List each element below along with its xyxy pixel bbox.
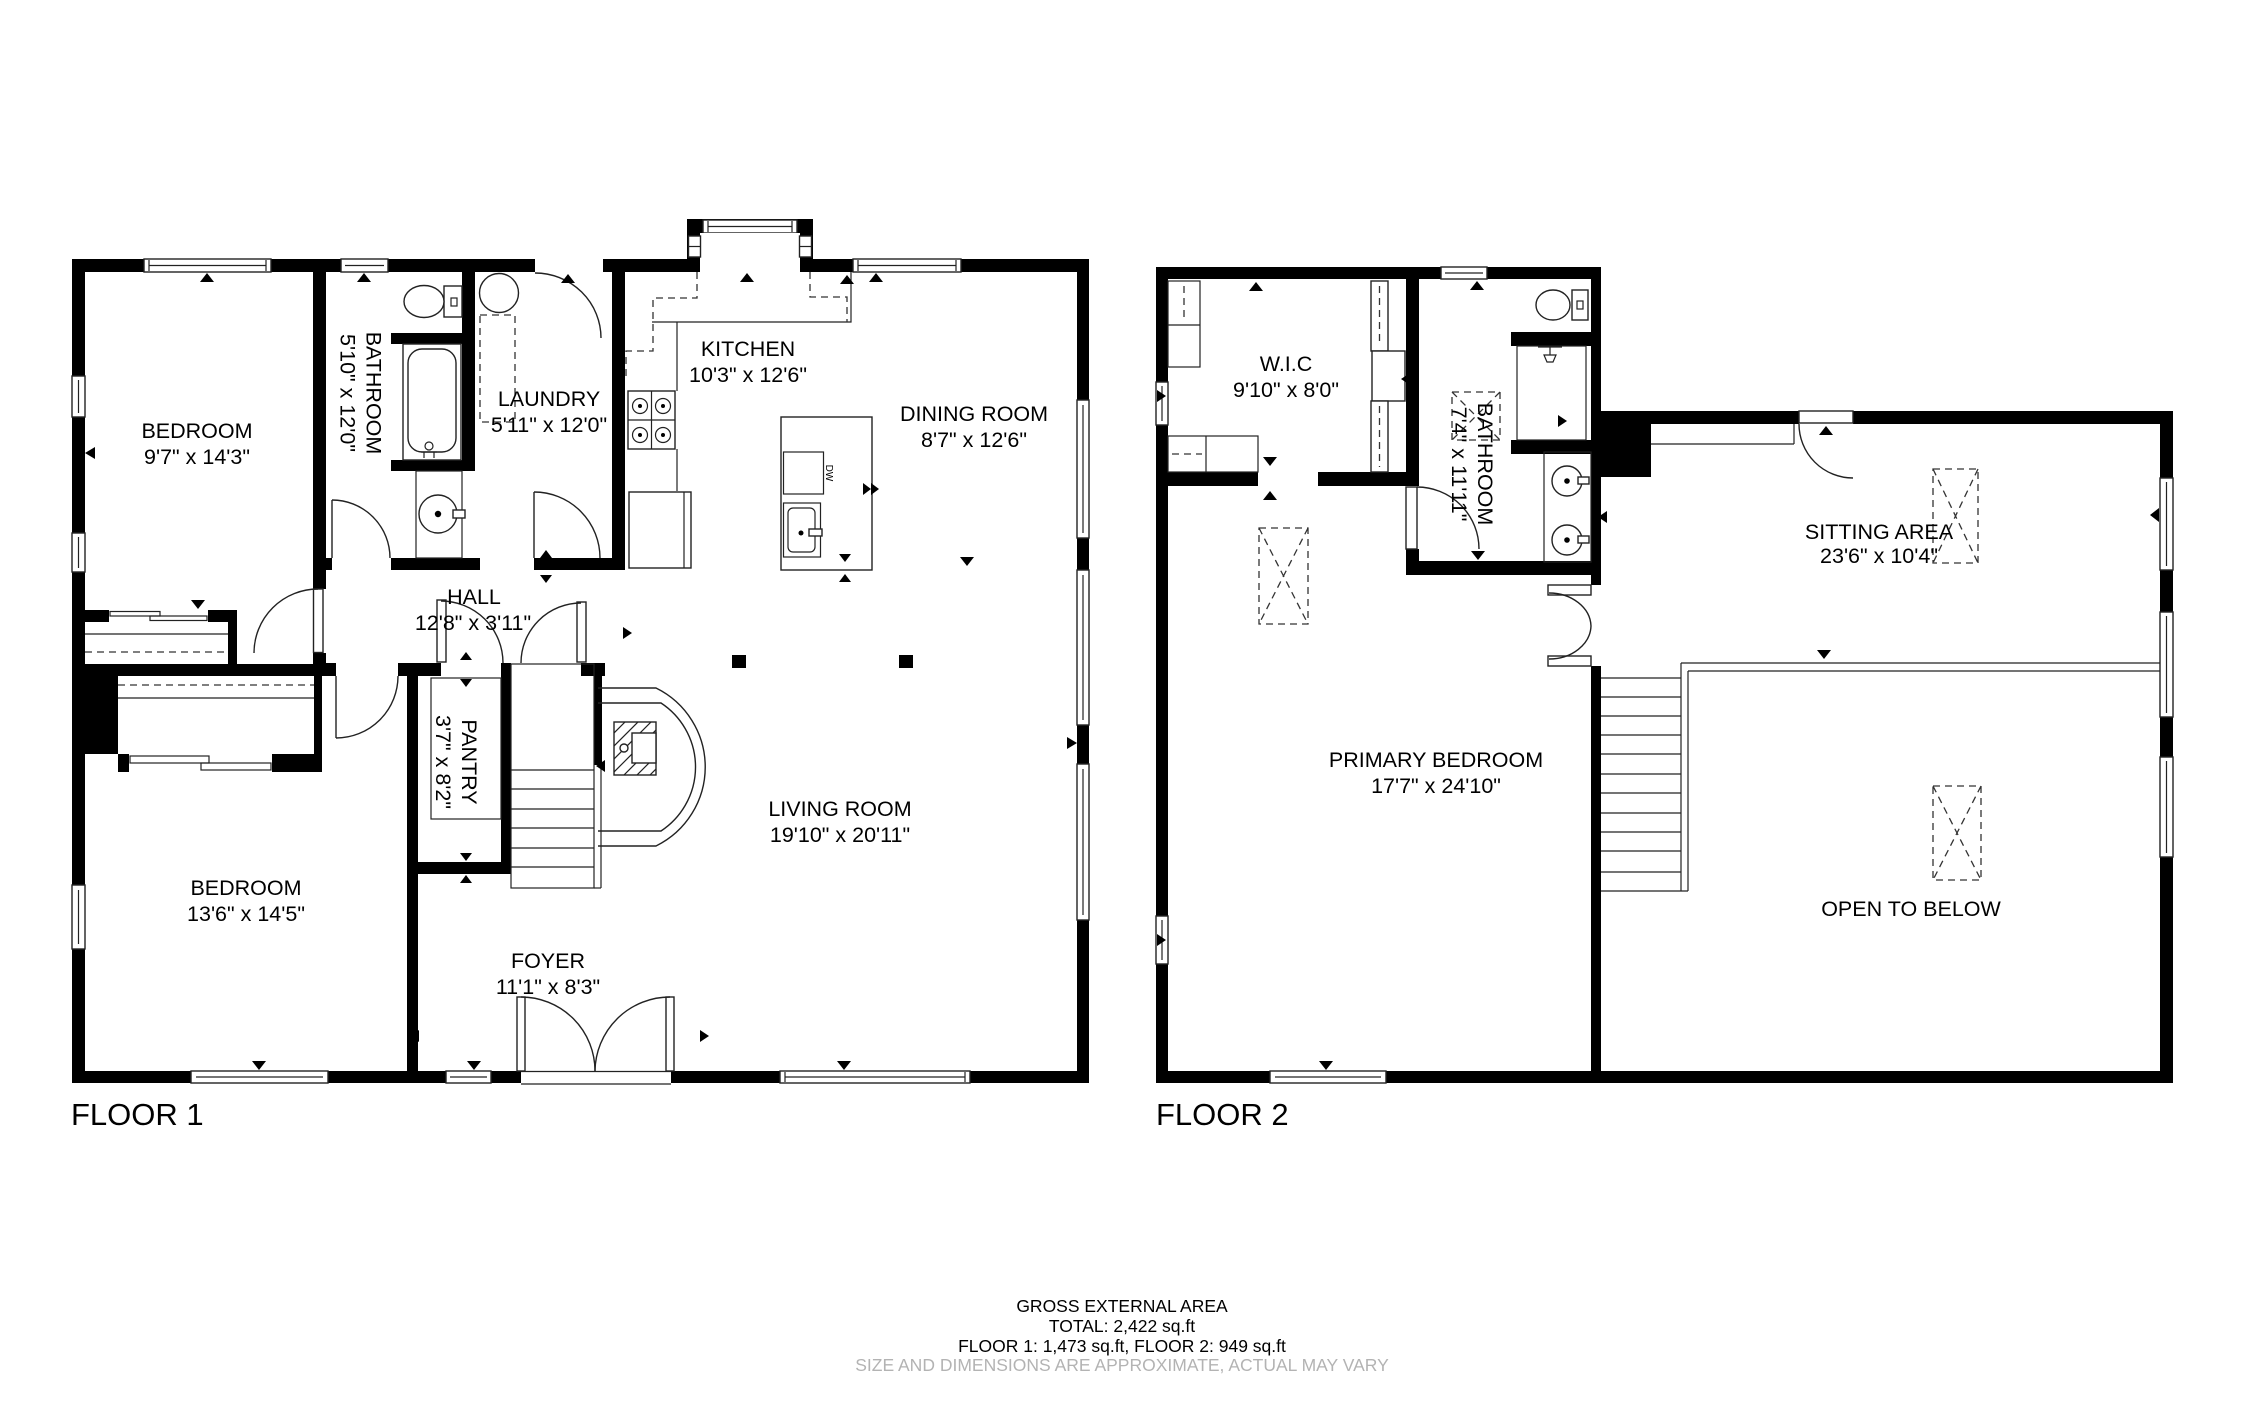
svg-text:W.I.C: W.I.C (1260, 352, 1313, 376)
svg-text:5'10" x 12'0": 5'10" x 12'0" (336, 334, 360, 452)
svg-text:23'6" x 10'4": 23'6" x 10'4" (1820, 544, 1938, 568)
svg-text:TOTAL: 2,422 sq.ft: TOTAL: 2,422 sq.ft (1049, 1316, 1195, 1336)
svg-text:FLOOR 2: FLOOR 2 (1156, 1097, 1289, 1132)
svg-text:11'1" x 8'3": 11'1" x 8'3" (496, 975, 600, 999)
svg-text:DW: DW (823, 465, 834, 482)
svg-text:SIZE AND DIMENSIONS ARE APPROX: SIZE AND DIMENSIONS ARE APPROXIMATE, ACT… (855, 1355, 1389, 1375)
svg-text:HALL: HALL (447, 585, 501, 609)
svg-text:FLOOR 1: 1,473 sq.ft, FLOOR 2:: FLOOR 1: 1,473 sq.ft, FLOOR 2: 949 sq.ft (958, 1336, 1286, 1356)
svg-text:FLOOR 1: FLOOR 1 (71, 1097, 204, 1132)
svg-text:KITCHEN: KITCHEN (701, 337, 795, 361)
svg-text:PRIMARY BEDROOM: PRIMARY BEDROOM (1329, 748, 1543, 772)
svg-text:3'7" x 8'2": 3'7" x 8'2" (431, 715, 455, 809)
svg-text:PANTRY: PANTRY (457, 719, 481, 804)
svg-text:13'6" x 14'5": 13'6" x 14'5" (187, 902, 305, 926)
svg-text:5'11" x 12'0": 5'11" x 12'0" (491, 413, 607, 437)
svg-text:12'8" x 3'11": 12'8" x 3'11" (415, 611, 531, 635)
svg-text:7'4" x 11'11": 7'4" x 11'11" (1447, 407, 1471, 522)
svg-text:8'7" x 12'6": 8'7" x 12'6" (921, 428, 1027, 452)
svg-text:9'7" x 14'3": 9'7" x 14'3" (144, 445, 250, 469)
svg-text:17'7" x 24'10": 17'7" x 24'10" (1371, 774, 1501, 798)
svg-text:BEDROOM: BEDROOM (141, 419, 252, 443)
svg-text:DINING ROOM: DINING ROOM (900, 402, 1048, 426)
svg-text:19'10" x 20'11": 19'10" x 20'11" (770, 823, 910, 847)
svg-text:9'10" x 8'0": 9'10" x 8'0" (1233, 378, 1339, 402)
svg-text:FOYER: FOYER (511, 949, 585, 973)
svg-text:SITTING AREA: SITTING AREA (1805, 520, 1954, 544)
svg-text:BATHROOM: BATHROOM (362, 332, 386, 455)
svg-text:LAUNDRY: LAUNDRY (498, 387, 600, 411)
svg-text:OPEN TO BELOW: OPEN TO BELOW (1821, 897, 2001, 921)
svg-text:BATHROOM: BATHROOM (1473, 403, 1497, 526)
svg-text:10'3" x 12'6": 10'3" x 12'6" (689, 363, 807, 387)
svg-text:BEDROOM: BEDROOM (190, 876, 301, 900)
svg-text:LIVING ROOM: LIVING ROOM (768, 797, 911, 821)
svg-text:GROSS EXTERNAL AREA: GROSS EXTERNAL AREA (1016, 1296, 1228, 1316)
